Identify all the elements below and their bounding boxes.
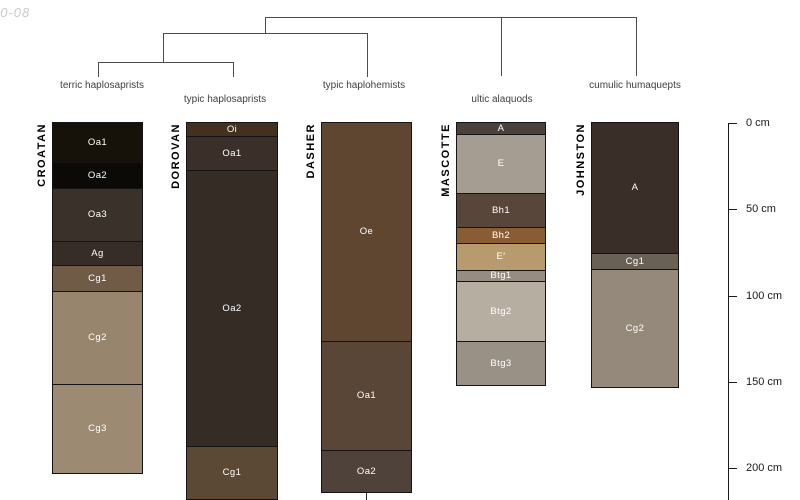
horizon-dorovan-oi: Oi [187,123,277,137]
horizon-croatan-ag: Ag [53,242,142,266]
profile-column-mascotte: AEBh1Bh2E′Btg1Btg2Btg3 [456,122,546,386]
profile-column-dasher: OeOa1Oa2 [321,122,412,493]
profile-name-croatan: CROATAN [36,123,48,187]
horizon-label: Cg1 [88,274,107,284]
horizon-label: Ag [91,249,103,259]
taxon-label-ultic-alaquods: ultic alaquods [471,94,532,105]
taxon-label-typic-haplosaprists: typic haplosaprists [184,94,266,105]
horizon-mascotte-btg2: Btg2 [457,282,545,342]
profile-name-johnston: JOHNSTON [575,123,587,196]
horizon-croatan-oa2: Oa2 [53,163,142,189]
depth-tick-0 [728,123,737,124]
horizon-johnston-a: A [592,123,678,254]
horizon-label: E′ [497,252,506,262]
depth-tick-50 [728,209,737,210]
horizon-croatan-cg3: Cg3 [53,385,142,473]
profile-column-croatan: Oa1Oa2Oa3AgCg1Cg2Cg3 [52,122,143,474]
horizon-croatan-cg1: Cg1 [53,266,142,292]
horizon-dasher-oa1: Oa1 [322,342,411,451]
dendrogram-segment-9 [636,17,637,76]
dendrogram-segment-7 [367,33,368,77]
profile-name-dasher: DASHER [305,123,317,178]
horizon-croatan-cg2: Cg2 [53,292,142,385]
taxon-label-terric-haplosaprists: terric haplosaprists [60,80,144,91]
horizon-label: Cg3 [88,424,107,434]
horizon-label: Oa1 [357,391,376,401]
horizon-dorovan-cg1: Cg1 [187,447,277,499]
horizon-dasher-oe: Oe [322,123,411,342]
taxon-label-typic-haplohemists: typic haplohemists [323,80,405,91]
depth-tick-200 [728,468,737,469]
depth-tick-label-200: 200 cm [746,462,782,474]
horizon-label: Oa3 [88,210,107,220]
horizon-croatan-oa1: Oa1 [53,123,142,163]
horizon-label: Oa1 [88,138,107,148]
horizon-label: A [498,124,505,134]
dendrogram-segment-5 [98,62,99,77]
dendrogram-segment-2 [163,33,367,34]
horizon-label: Oe [360,227,373,237]
horizon-label: Cg2 [88,333,107,343]
depth-tick-150 [728,382,737,383]
horizon-dasher-oa2: Oa2 [322,451,411,492]
horizon-label: Cg1 [223,468,242,478]
depth-tick-label-100: 100 cm [746,290,782,302]
horizon-label: A [632,183,639,193]
profile-column-dorovan: OiOa1Oa2Cg1 [186,122,278,500]
profile-column-johnston: ACg1Cg2 [591,122,679,388]
horizon-croatan-oa3: Oa3 [53,189,142,242]
dendrogram-segment-0 [265,17,637,18]
horizon-mascotte-bh2: Bh2 [457,228,545,244]
horizon-label: Bh2 [492,231,510,241]
watermark-date: 10-08 [0,5,30,20]
horizon-label: Cg2 [626,324,645,334]
soil-profile-figure: 10-08 terric haplosapriststypic haplosap… [0,0,800,500]
horizon-mascotte-btg3: Btg3 [457,342,545,385]
depth-tick-label-50: 50 cm [746,203,776,215]
dendrogram-segment-4 [98,62,233,63]
horizon-mascotte-e′: E′ [457,244,545,271]
horizon-label: Btg2 [490,307,511,317]
depth-tick-label-0: 0 cm [746,117,770,129]
depth-tick-100 [728,296,737,297]
horizon-label: Oa2 [88,171,107,181]
dendrogram-segment-3 [163,33,164,62]
dendrogram-segment-8 [501,17,502,76]
dendrogram-segment-6 [233,62,234,77]
horizon-mascotte-bh1: Bh1 [457,194,545,228]
horizon-mascotte-a: A [457,123,545,135]
horizon-label: Oi [227,125,237,135]
depth-tick-label-150: 150 cm [746,376,782,388]
horizon-label: E [498,159,505,169]
horizon-label: Oa2 [222,304,241,314]
horizon-label: Btg3 [490,359,511,369]
horizon-label: Cg1 [626,257,645,267]
profile-name-mascotte: MASCOTTE [440,123,452,197]
horizon-johnston-cg2: Cg2 [592,270,678,387]
horizon-mascotte-btg1: Btg1 [457,271,545,282]
horizon-label: Oa2 [357,467,376,477]
horizon-label: Btg1 [490,271,511,281]
depth-axis-line [728,123,729,500]
horizon-mascotte-e: E [457,135,545,194]
dendrogram-segment-1 [265,17,266,33]
horizon-dorovan-oa2: Oa2 [187,171,277,447]
horizon-dorovan-oa1: Oa1 [187,137,277,171]
profile-name-dorovan: DOROVAN [170,123,182,189]
horizon-johnston-cg1: Cg1 [592,254,678,270]
horizon-label: Bh1 [492,206,510,216]
dasher-bottom-tick [366,493,367,500]
horizon-label: Oa1 [222,149,241,159]
taxon-label-cumulic-humaquepts: cumulic humaquepts [589,80,681,91]
